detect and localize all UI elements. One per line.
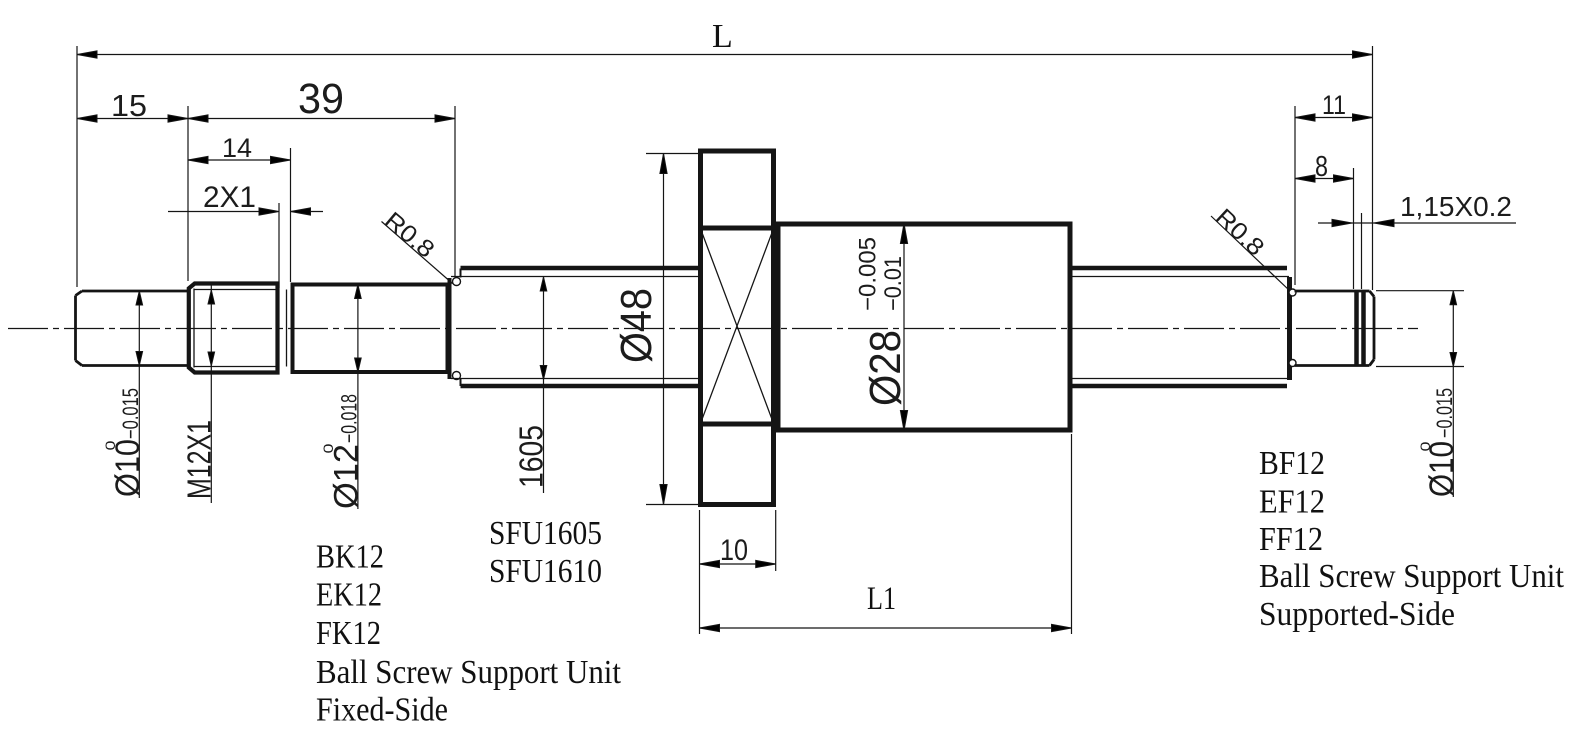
svg-text:Ø48: Ø48 [612, 288, 661, 363]
svg-text:11: 11 [1322, 90, 1346, 120]
svg-text:BK12: BK12 [316, 539, 384, 576]
svg-text:1,15X0.2: 1,15X0.2 [1400, 191, 1512, 222]
svg-text:SFU1605: SFU1605 [489, 515, 602, 552]
svg-text:EK12: EK12 [316, 577, 382, 614]
svg-text:−0.018: −0.018 [337, 394, 362, 443]
svg-text:14: 14 [222, 133, 252, 163]
svg-text:−0.005: −0.005 [855, 237, 882, 311]
svg-text:FK12: FK12 [316, 615, 381, 652]
svg-text:SFU1610: SFU1610 [489, 553, 602, 590]
svg-text:8: 8 [1315, 151, 1328, 183]
svg-text:15: 15 [111, 88, 147, 123]
svg-text:L1: L1 [867, 581, 896, 617]
svg-text:Ball Screw Support Unit: Ball Screw Support Unit [316, 654, 621, 691]
svg-text:39: 39 [298, 75, 344, 123]
svg-text:2X1: 2X1 [203, 181, 256, 214]
svg-text:M12X1: M12X1 [181, 420, 218, 499]
svg-text:0: 0 [1417, 441, 1433, 451]
svg-text:FF12: FF12 [1259, 521, 1323, 558]
svg-text:0: 0 [102, 440, 118, 450]
svg-text:−0.01: −0.01 [880, 256, 907, 311]
svg-text:L: L [712, 18, 733, 55]
svg-text:10: 10 [720, 534, 748, 567]
svg-text:Ø28: Ø28 [861, 330, 910, 406]
svg-text:−0.015: −0.015 [1432, 388, 1457, 438]
svg-text:Supported-Side: Supported-Side [1259, 596, 1455, 633]
svg-text:1605: 1605 [513, 425, 550, 488]
svg-text:BF12: BF12 [1259, 445, 1325, 482]
svg-text:Fixed-Side: Fixed-Side [316, 692, 448, 729]
svg-text:EF12: EF12 [1259, 484, 1325, 521]
svg-text:Ball Screw Support Unit: Ball Screw Support Unit [1259, 558, 1564, 595]
svg-text:0: 0 [320, 443, 336, 453]
svg-text:−0.015: −0.015 [118, 388, 143, 439]
